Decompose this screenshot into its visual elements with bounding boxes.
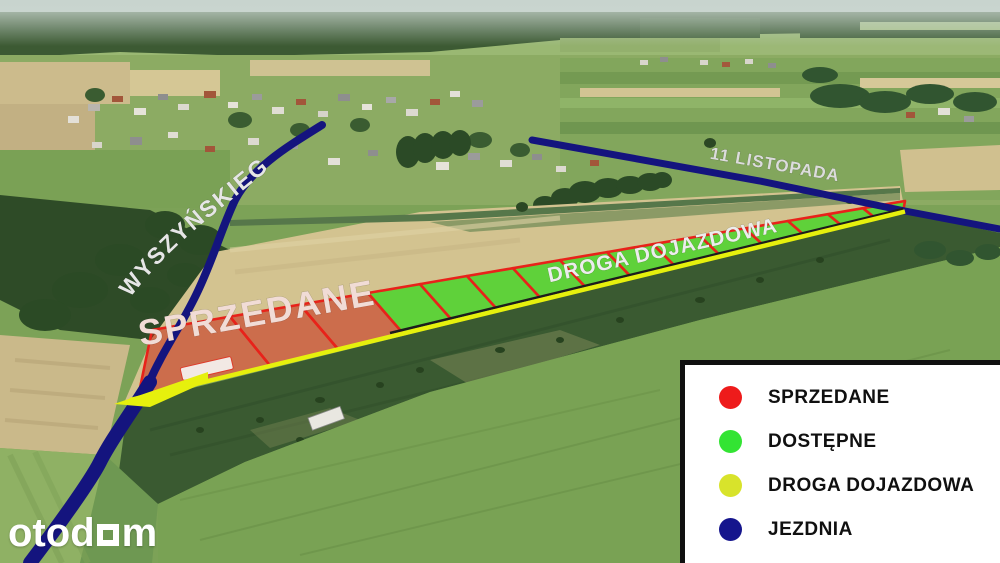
- logo-text-after: m: [122, 511, 158, 555]
- legend-item-label: DROGA DOJAZDOWA: [768, 475, 974, 497]
- legend-rows: SPRZEDANE DOSTĘPNE DROGA DOJAZDOWA JEZDN…: [719, 386, 1000, 541]
- legend-color-dot: [719, 386, 742, 409]
- logo-text-before: otod: [8, 511, 95, 555]
- legend-item-label: JEZDNIA: [768, 519, 853, 541]
- legend-color-dot: [719, 430, 742, 453]
- legend-item-road: JEZDNIA: [719, 518, 1000, 541]
- logo-square-icon: [97, 524, 119, 546]
- legend-color-dot: [719, 518, 742, 541]
- legend: SPRZEDANE DOSTĘPNE DROGA DOJAZDOWA JEZDN…: [680, 360, 1000, 563]
- legend-item-label: DOSTĘPNE: [768, 431, 877, 453]
- legend-item-label: SPRZEDANE: [768, 387, 890, 409]
- legend-item-available: DOSTĘPNE: [719, 430, 1000, 453]
- listing-image: WYSZYŃSKIEGO 11 LISTOPADA DROGA DOJAZDOW…: [0, 0, 1000, 563]
- otodom-logo: otodm: [8, 513, 157, 553]
- legend-color-dot: [719, 474, 742, 497]
- legend-item-access-road: DROGA DOJAZDOWA: [719, 474, 1000, 497]
- legend-item-sold: SPRZEDANE: [719, 386, 1000, 409]
